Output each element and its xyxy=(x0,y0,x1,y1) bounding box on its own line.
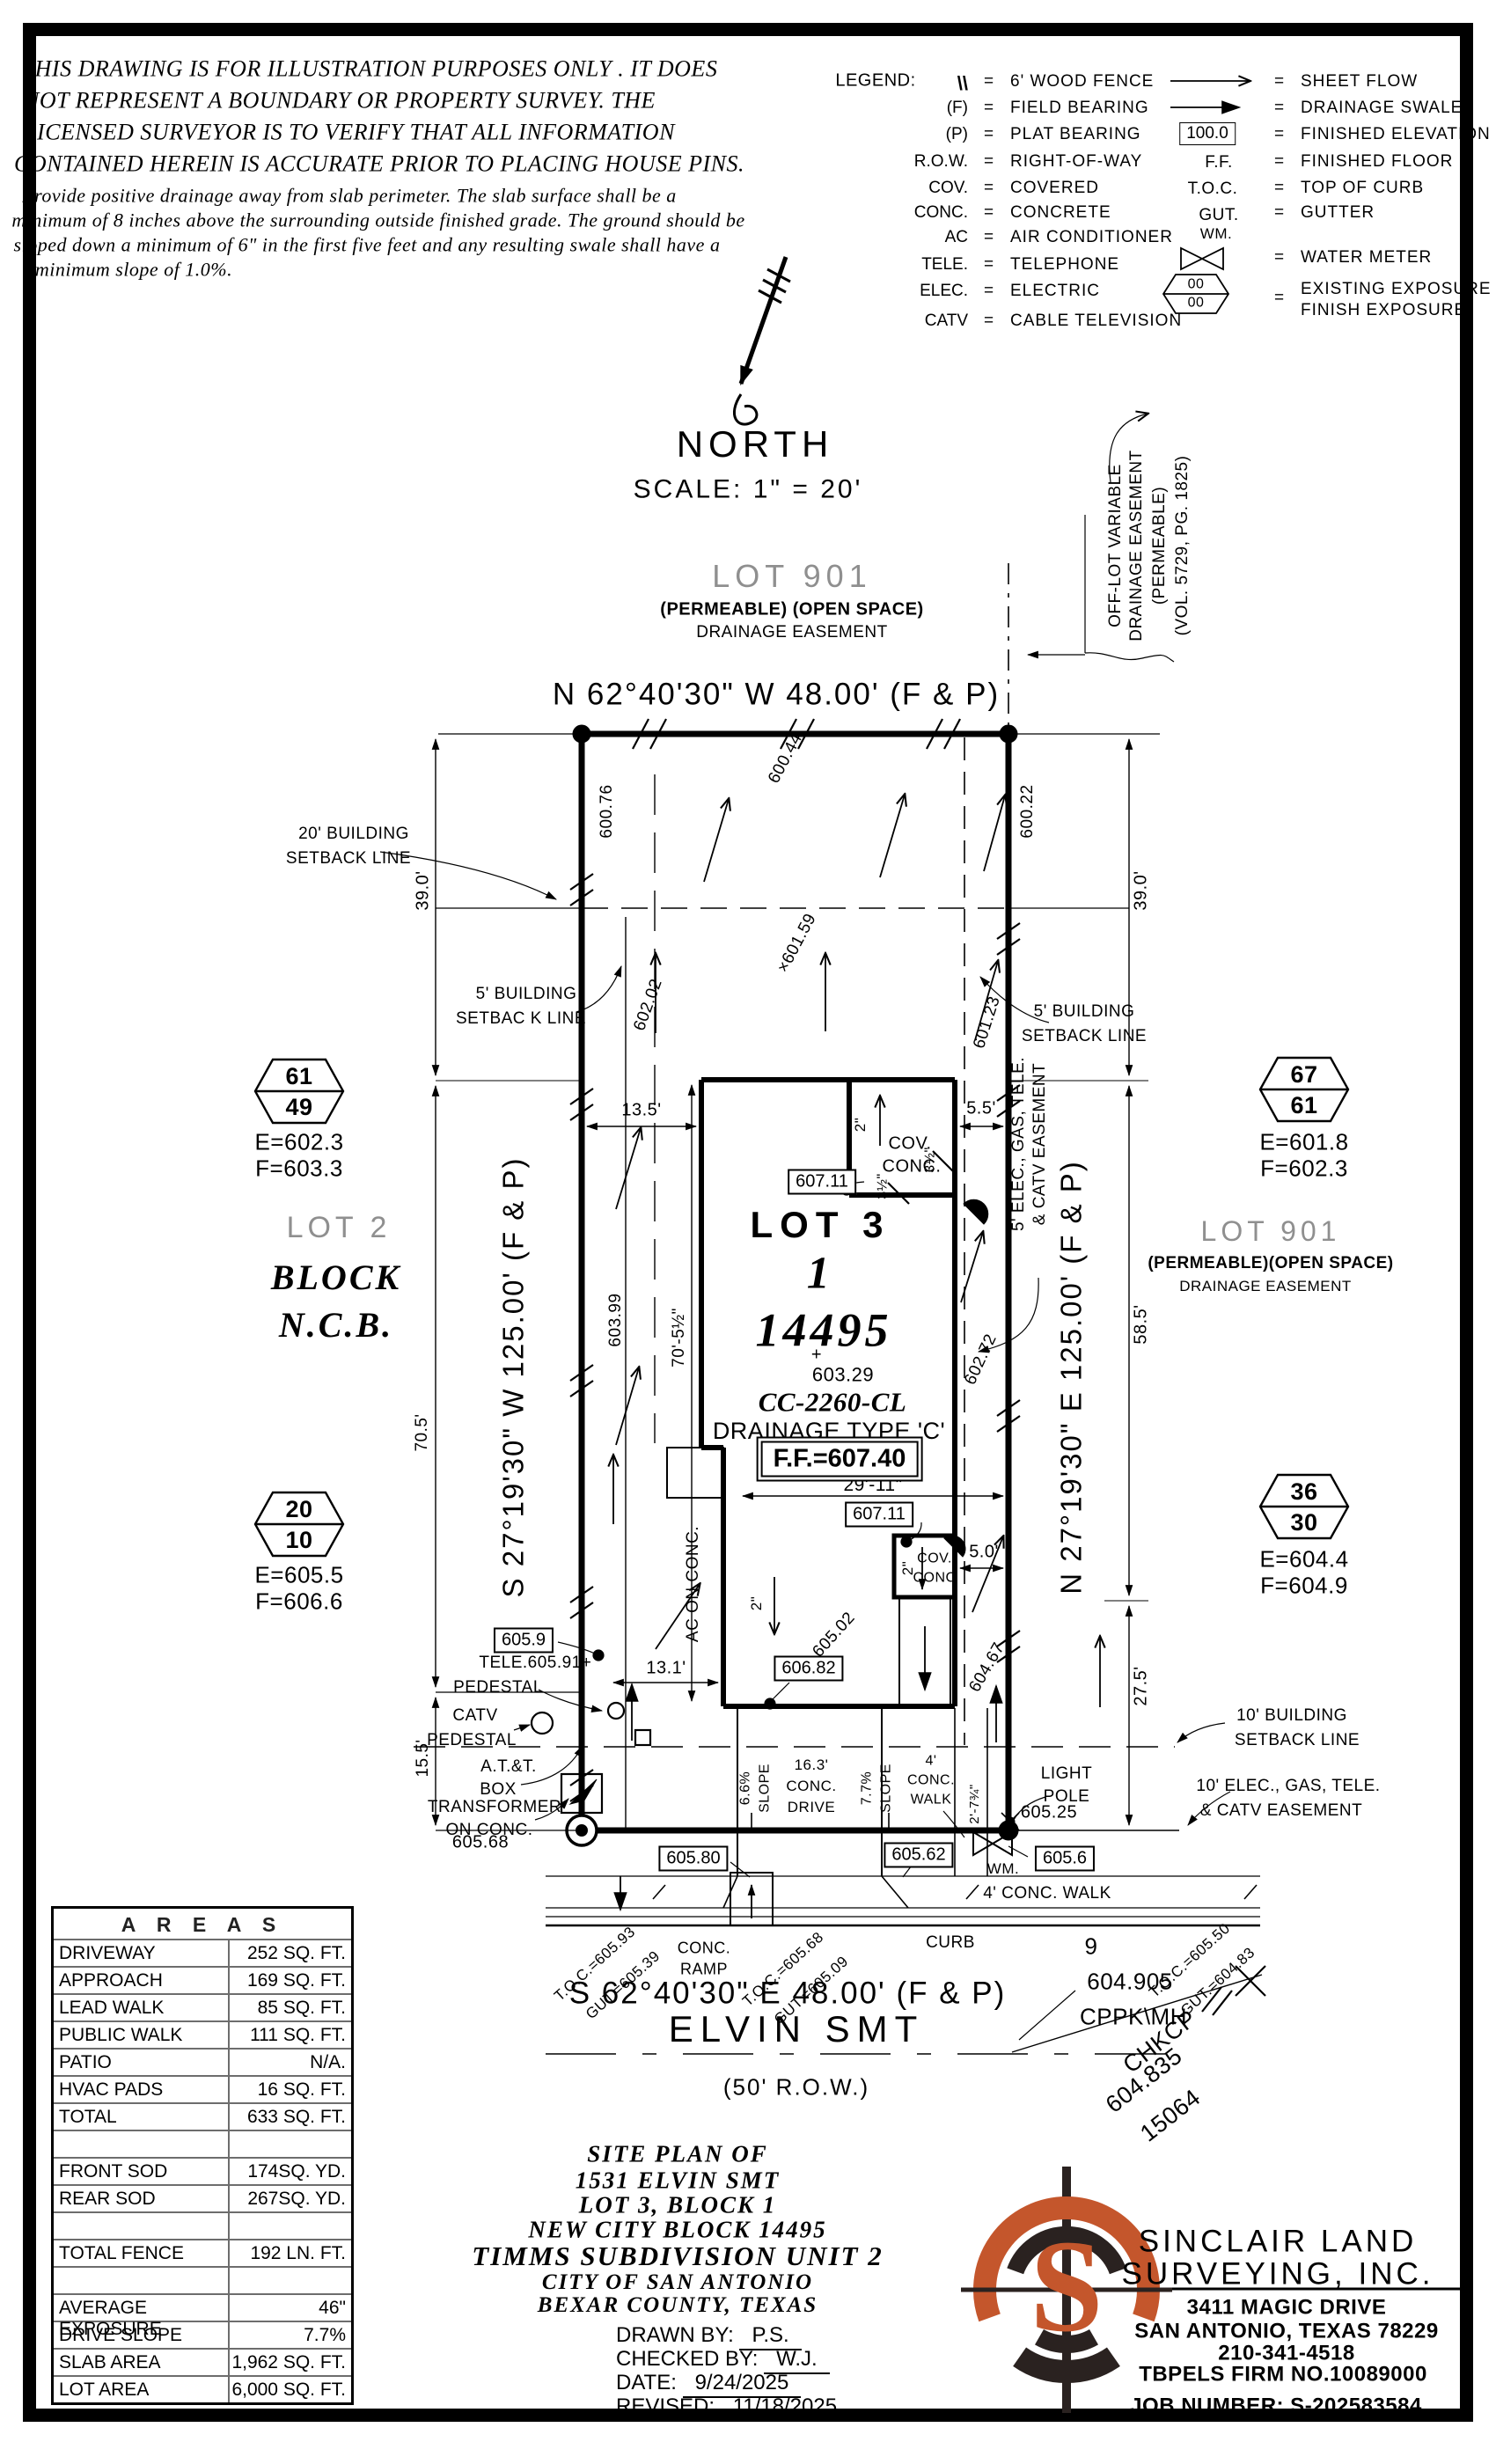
legend-symbol: ELEC. xyxy=(836,282,968,301)
title-line: NEW CITY BLOCK 14495 xyxy=(528,2217,826,2244)
bearing-left: S 27°19'30" W 125.00' (F & P) xyxy=(499,1157,530,1598)
legend-symbol: GUT. xyxy=(1199,207,1238,224)
lead-walk-label: CONC. xyxy=(907,1774,955,1789)
street-name: ELVIN SMT xyxy=(669,2010,925,2049)
legend-desc: CABLE TELEVISION xyxy=(1010,312,1182,331)
legend-symbol: F.F. xyxy=(1205,154,1233,172)
tele-pedestal-label: TELE. xyxy=(479,1654,527,1672)
company-addr: SAN ANTONIO, TEXAS 78229 xyxy=(1134,2320,1438,2342)
drive-slope-label: SLOPE xyxy=(759,1764,774,1813)
dim-39-left: 39.0' xyxy=(414,870,433,910)
row-value: 6,000 SQ. FT. xyxy=(230,2377,351,2402)
legend-desc: CONCRETE xyxy=(1010,203,1111,223)
spot-elev: 605.91+ xyxy=(528,1654,592,1672)
table-row xyxy=(54,2130,351,2157)
lead-walk-label: WALK xyxy=(911,1793,952,1808)
legend-eq: = xyxy=(984,179,994,198)
cov-conc-label: COV. xyxy=(888,1135,931,1154)
areas-table: A R E A S DRIVEWAY252 SQ. FT. APPROACH16… xyxy=(51,1906,354,2405)
hex-top: 36 xyxy=(1290,1479,1317,1504)
dim-5-0: 5.0' xyxy=(969,1544,999,1562)
hex-f: F=606.6 xyxy=(255,1589,343,1613)
hex-top: 61 xyxy=(285,1064,312,1089)
row-value: 111 SQ. FT. xyxy=(230,2022,351,2048)
spot-elev-box: 605.80 xyxy=(658,1846,728,1872)
date-field: DATE: 9/24/2025 xyxy=(616,2371,801,2395)
spot-elev: 600.76 xyxy=(598,784,616,838)
conc-ramp-label: CONC. xyxy=(678,1940,731,1957)
legend-eq: = xyxy=(1274,99,1284,118)
legend-symbol: CATV xyxy=(836,312,968,331)
disclaimer-line: LICENSED SURVEYOR IS TO VERIFY THAT ALL … xyxy=(24,120,675,143)
dim-13-1: 13.1' xyxy=(646,1660,686,1678)
legend-eq: = xyxy=(984,282,994,301)
disclaimer-line: THIS DRAWING IS FOR ILLUSTRATION PURPOSE… xyxy=(22,56,718,80)
spot-elev: 605.25 xyxy=(1021,1804,1077,1822)
lot901-top-title: LOT 901 xyxy=(712,560,871,593)
drive-label: 16.3' xyxy=(795,1757,829,1773)
finished-floor-box: F.F.=607.40 xyxy=(757,1437,923,1482)
north-arrow-icon xyxy=(734,257,790,424)
table-row: PUBLIC WALK111 SQ. FT. xyxy=(54,2020,351,2048)
title-line: BEXAR COUNTY, TEXAS xyxy=(538,2293,818,2318)
legend-desc: EXISTING EXPOSURE xyxy=(1301,280,1492,299)
row-value: 85 SQ. FT. xyxy=(230,1995,351,2020)
row-value: 252 SQ. FT. xyxy=(230,1940,351,1966)
dim-5-5: 5.5' xyxy=(966,1100,996,1118)
field-label: REVISED: xyxy=(616,2394,715,2418)
row-label: DRIVE SLOPE xyxy=(54,2322,230,2348)
row-label: APPROACH xyxy=(54,1968,230,1993)
cov-conc-label: CONC xyxy=(913,1572,956,1587)
row-value: 174SQ. YD. xyxy=(230,2159,351,2184)
lot901-right-sub1: (PERMEABLE)(OPEN SPACE) xyxy=(1148,1255,1393,1272)
att-box-label: A.T.&T. xyxy=(480,1758,537,1776)
lot901-right-sub2: DRAINAGE EASEMENT xyxy=(1179,1279,1352,1294)
table-row: LEAD WALK85 SQ. FT. xyxy=(54,1993,351,2020)
lead-walk-label: 4' xyxy=(926,1755,937,1770)
field-value: 11/18/2025 xyxy=(721,2394,849,2422)
hex-bottom: 30 xyxy=(1290,1510,1317,1535)
legend-desc: TELEPHONE xyxy=(1010,255,1119,275)
disclaimer-line: CONTAINED HEREIN IS ACCURATE PRIOR TO PL… xyxy=(14,151,744,175)
lot2-block: BLOCK xyxy=(271,1259,401,1296)
legend-eq: = xyxy=(1274,125,1284,144)
legend-eq: = xyxy=(984,99,994,118)
hex-e: E=605.5 xyxy=(254,1563,343,1587)
ac-on-conc-label: AC ON CONC. xyxy=(685,1526,702,1642)
company-name: SURVEYING, INC. xyxy=(1122,2259,1434,2292)
row-value: 16 SQ. FT. xyxy=(230,2077,351,2102)
table-row: PATION/A. xyxy=(54,2048,351,2075)
logo-s: S xyxy=(1030,2213,1103,2359)
field-label: CHECKED BY: xyxy=(616,2347,758,2371)
spot-elev-box: 605.6 xyxy=(1035,1846,1095,1872)
dim-2in: 2" xyxy=(853,1118,869,1133)
row-value: 267SQ. YD. xyxy=(230,2186,351,2211)
spot-elev-box: 607.11 xyxy=(788,1170,856,1195)
legend-hex-top: 00 xyxy=(1188,278,1205,293)
easement-10-label: & CATV EASEMENT xyxy=(1200,1802,1363,1820)
row-label: SLAB AREA xyxy=(54,2350,230,2375)
house-plan-code: CC-2260-CL xyxy=(759,1389,907,1418)
manhole-note: CPPK\MH xyxy=(1080,2005,1187,2028)
table-row: REAR SOD267SQ. YD. xyxy=(54,2184,351,2211)
company-name: SINCLAIR LAND xyxy=(1139,2226,1418,2259)
legend-eq: = xyxy=(1274,152,1284,172)
legend-symbol: CONC. xyxy=(836,203,968,223)
table-row: AVERAGE EXPOSURE46" xyxy=(54,2293,351,2321)
hex-bottom: 49 xyxy=(285,1095,312,1119)
legend-eq: = xyxy=(984,312,994,331)
table-row: DRIVE SLOPE7.7% xyxy=(54,2321,351,2348)
legend-eq: = xyxy=(984,125,994,144)
house-ncb-num: 14495 xyxy=(756,1306,892,1356)
transformer-label: ON CONC. xyxy=(446,1822,533,1839)
row-label: TOTAL FENCE xyxy=(54,2240,230,2266)
field-label: DATE: xyxy=(616,2371,677,2394)
setback-5l-label: 5' BUILDING xyxy=(476,986,577,1003)
revised-field: REVISED: 11/18/2025 xyxy=(616,2394,849,2419)
row-label xyxy=(54,2268,230,2293)
house-spot-plus: + xyxy=(811,1346,822,1365)
legend-desc: AIR CONDITIONER xyxy=(1010,228,1173,247)
row-label: AVERAGE EXPOSURE xyxy=(54,2295,230,2321)
spot-elev-box: 605.9 xyxy=(494,1628,554,1654)
legend-eq: = xyxy=(984,203,994,223)
table-row: TOTAL FENCE192 LN. FT. xyxy=(54,2239,351,2266)
public-walk-label: 4' CONC. WALK xyxy=(983,1885,1111,1903)
drive-slope-label: SLOPE xyxy=(880,1764,895,1813)
site-plan-sheet: THIS DRAWING IS FOR ILLUSTRATION PURPOSE… xyxy=(0,0,1496,2464)
legend-desc: SHEET FLOW xyxy=(1301,72,1418,92)
table-row: DRIVEWAY252 SQ. FT. xyxy=(54,1939,351,1966)
dim-2in: 2" xyxy=(749,1596,765,1611)
light-pole-label: POLE xyxy=(1044,1788,1090,1806)
legend-desc: FIELD BEARING xyxy=(1010,99,1149,118)
house-block-num: 1 xyxy=(807,1250,831,1299)
dim-3half: 3½" xyxy=(876,1173,891,1199)
legend-desc: PLAT BEARING xyxy=(1010,125,1141,144)
bearing-bottom: S 62°40'30" E 48.00' (F & P) xyxy=(569,1978,1007,2011)
row-label: PUBLIC WALK xyxy=(54,2022,230,2048)
row-label xyxy=(54,2131,230,2157)
drawn-by-field: DRAWN BY: P.S. xyxy=(616,2323,802,2348)
disclaimer-note: Provide positive drainage away from slab… xyxy=(22,185,677,205)
dim-27-5: 27.5' xyxy=(1133,1666,1151,1705)
legend-desc: RIGHT-OF-WAY xyxy=(1010,152,1142,172)
row-label: TOTAL xyxy=(54,2104,230,2130)
catv-pedestal-label: CATV xyxy=(452,1707,497,1725)
easement-5-label: 5' ELEC., GAS, TELE. xyxy=(1010,1057,1028,1231)
legend-symbol: R.O.W. xyxy=(836,152,968,172)
offlot-easement-note: DRAINAGE EASEMENT xyxy=(1128,450,1146,642)
disclaimer-note: sloped down a minimum of 6" in the first… xyxy=(14,234,721,254)
setback-5r-label: SETBACK LINE xyxy=(1022,1028,1147,1045)
bearing-right: N 27°19'30" E 125.00' (F & P) xyxy=(1057,1160,1088,1595)
legend-desc: DRAINAGE SWALE xyxy=(1301,99,1463,118)
legend-eq: = xyxy=(1274,72,1284,92)
legend-desc: FINISH EXPOSURE xyxy=(1301,301,1466,320)
drive-slope-label: 6.6% xyxy=(739,1771,754,1805)
table-row: TOTAL633 SQ. FT. xyxy=(54,2102,351,2130)
row-label: LOT AREA xyxy=(54,2377,230,2402)
legend-hex-bottom: 00 xyxy=(1188,297,1205,312)
north-label: NORTH xyxy=(677,425,834,464)
row-value: 7.7% xyxy=(230,2322,351,2348)
table-row: LOT AREA6,000 SQ. FT. xyxy=(54,2375,351,2402)
setback-10-label: SETBACK LINE xyxy=(1235,1732,1360,1749)
row-label: DRIVEWAY xyxy=(54,1940,230,1966)
cov-conc-label: COV. xyxy=(917,1552,952,1567)
hex-e: E=604.4 xyxy=(1259,1547,1348,1571)
title-line: CITY OF SAN ANTONIO xyxy=(542,2270,813,2295)
setback-10-label: 10' BUILDING xyxy=(1236,1707,1347,1725)
dim-2-7: 2'-7¾" xyxy=(968,1784,982,1823)
transformer-label: TRANSFORMER xyxy=(428,1799,561,1816)
table-row: SLAB AREA1,962 SQ. FT. xyxy=(54,2348,351,2375)
company-addr: 3411 MAGIC DRIVE xyxy=(1187,2296,1387,2318)
manhole-note: 604.905 xyxy=(1087,1969,1172,1993)
setback-5r-label: 5' BUILDING xyxy=(1034,1003,1135,1021)
drive-label: CONC. xyxy=(786,1778,836,1794)
company-job: JOB NUMBER: S-202583584 xyxy=(1130,2394,1422,2416)
checked-by-field: CHECKED BY: W.J. xyxy=(616,2347,830,2372)
legend-symbol: COV. xyxy=(836,179,968,198)
field-label: DRAWN BY: xyxy=(616,2323,734,2347)
spot-elev: 603.99 xyxy=(607,1293,625,1346)
spot-elev: 600.22 xyxy=(1019,784,1037,838)
legend-symbol: T.O.C. xyxy=(1188,180,1238,198)
legend-eq: = xyxy=(984,255,994,275)
offlot-easement-note: (PERMEABLE) xyxy=(1151,487,1169,605)
lot901-top-sub2: DRAINAGE EASEMENT xyxy=(696,624,888,642)
legend-eq: = xyxy=(1274,289,1284,308)
row-label: REAR SOD xyxy=(54,2186,230,2211)
legend-symbol: AC xyxy=(836,228,968,247)
title-line: SITE PLAN OF xyxy=(587,2141,768,2168)
row-label: PATIO xyxy=(54,2050,230,2075)
legend-desc: 6' WOOD FENCE xyxy=(1010,72,1154,92)
dim-39-right: 39.0' xyxy=(1133,870,1151,910)
table-row: APPROACH169 SQ. FT. xyxy=(54,1966,351,1993)
row-value: 1,962 SQ. FT. xyxy=(230,2350,351,2375)
drive-label: DRIVE xyxy=(788,1800,835,1815)
dim-70-5half: 70'-5½" xyxy=(671,1308,688,1368)
legend-symbol: (P) xyxy=(836,125,968,144)
easement-10-label: 10' ELEC., GAS, TELE. xyxy=(1196,1778,1380,1795)
drive-slope-label: 7.7% xyxy=(861,1771,876,1805)
hex-f: F=602.3 xyxy=(1260,1156,1348,1180)
light-pole-label: LIGHT xyxy=(1041,1765,1092,1783)
street-row: (50' R.O.W.) xyxy=(723,2075,869,2099)
disclaimer-note: minimum of 8 inches above the surroundin… xyxy=(11,209,744,230)
legend-symbol: TELE. xyxy=(836,255,968,275)
title-line: 1531 ELVIN SMT xyxy=(576,2167,781,2195)
legend-eq: = xyxy=(1274,248,1284,268)
spot-elev-box: 605.62 xyxy=(884,1843,953,1868)
legend-symbol: \\ xyxy=(836,72,968,95)
setback-5l-label: SETBAC K LINE xyxy=(456,1010,586,1028)
row-label: LEAD WALK xyxy=(54,1995,230,2020)
legend-eq: = xyxy=(984,152,994,172)
company-phone: 210-341-4518 xyxy=(1218,2342,1354,2364)
row-label xyxy=(54,2213,230,2239)
row-value xyxy=(230,2213,351,2239)
row-value: 46" xyxy=(230,2295,351,2321)
catv-pedestal-label: PEDESTAL xyxy=(427,1732,517,1749)
legend-eq: = xyxy=(984,228,994,247)
hex-bottom: 10 xyxy=(285,1528,312,1552)
hex-f: F=604.9 xyxy=(1260,1573,1348,1597)
disclaimer-line: NOT REPRESENT A BOUNDARY OR PROPERTY SUR… xyxy=(24,88,656,112)
legend-eq: = xyxy=(984,72,994,92)
legend-eq: = xyxy=(1274,179,1284,198)
house-spot-elev: 603.29 xyxy=(812,1364,874,1384)
row-label: HVAC PADS xyxy=(54,2077,230,2102)
row-value: 633 SQ. FT. xyxy=(230,2104,351,2130)
legend-symbol: WM. xyxy=(1200,226,1232,242)
conc-ramp-label: RAMP xyxy=(680,1962,728,1978)
lot2-ncb: N.C.B. xyxy=(279,1307,393,1344)
cov-conc-label: CONC. xyxy=(883,1158,942,1177)
lot901-top-sub1: (PERMEABLE) (OPEN SPACE) xyxy=(660,601,923,620)
easement-5-label: & CATV EASEMENT xyxy=(1031,1063,1049,1226)
bearing-top: N 62°40'30" W 48.00' (F & P) xyxy=(553,679,1000,712)
legend-desc: GUTTER xyxy=(1301,203,1375,223)
dim-13-5: 13.5' xyxy=(621,1102,661,1120)
spot-elev-box: 607.11 xyxy=(845,1502,913,1528)
hex-f: F=603.3 xyxy=(255,1156,343,1180)
legend-desc: ELECTRIC xyxy=(1010,282,1100,301)
legend-eq: = xyxy=(1274,203,1284,223)
table-row xyxy=(54,2211,351,2239)
legend-desc: COVERED xyxy=(1010,179,1099,198)
legend-desc: FINISHED FLOOR xyxy=(1301,152,1453,172)
legend-finished-elevation-box: 100.0 xyxy=(1179,122,1236,145)
table-row: FRONT SOD174SQ. YD. xyxy=(54,2157,351,2184)
dim-58-5: 58.5' xyxy=(1133,1304,1151,1344)
table-row: HVAC PADS16 SQ. FT. xyxy=(54,2075,351,2102)
legend-desc: FINISHED ELEVATION xyxy=(1301,125,1491,144)
setback-20-label: SETBACK LINE xyxy=(286,850,411,868)
row-value xyxy=(230,2268,351,2293)
row-value: 192 LN. FT. xyxy=(230,2240,351,2266)
offlot-easement-note: OFF-LOT VARIABLE xyxy=(1107,464,1125,627)
manhole-note: 9 xyxy=(1085,1934,1098,1958)
scale-label: SCALE: 1" = 20' xyxy=(634,475,863,503)
spot-elev-box: 606.82 xyxy=(774,1656,843,1682)
row-value: 169 SQ. FT. xyxy=(230,1968,351,1993)
disclaimer-note: minimum slope of 1.0%. xyxy=(35,259,232,279)
lot901-right-title: LOT 901 xyxy=(1201,1217,1341,1247)
row-label: FRONT SOD xyxy=(54,2159,230,2184)
title-line: TIMMS SUBDIVISION UNIT 2 xyxy=(472,2240,883,2272)
hex-e: E=601.8 xyxy=(1259,1130,1348,1154)
setback-20-label: 20' BUILDING xyxy=(298,825,409,843)
tele-pedestal-label: PEDESTAL xyxy=(453,1679,543,1697)
house-lot3: LOT 3 xyxy=(750,1206,890,1244)
table-row xyxy=(54,2266,351,2293)
curb-label: CURB xyxy=(926,1934,975,1952)
hex-top: 20 xyxy=(285,1497,312,1522)
lot2-title: LOT 2 xyxy=(287,1213,392,1244)
offlot-easement-note: (VOL. 5729, PG. 1825) xyxy=(1174,456,1192,636)
water-meter-label: WM. xyxy=(987,1861,1019,1877)
hex-bottom: 61 xyxy=(1290,1093,1317,1118)
row-value: N/A. xyxy=(230,2050,351,2075)
company-firm: TBPELS FIRM NO.10089000 xyxy=(1139,2363,1427,2385)
legend-desc: TOP OF CURB xyxy=(1301,179,1424,198)
att-box-label: BOX xyxy=(480,1781,517,1799)
title-line: LOT 3, BLOCK 1 xyxy=(579,2192,777,2219)
row-value xyxy=(230,2131,351,2157)
legend-symbol: (F) xyxy=(836,99,968,118)
hex-e: E=602.3 xyxy=(254,1130,343,1154)
legend-desc: WATER METER xyxy=(1301,248,1432,268)
dim-70-5: 70.5' xyxy=(414,1413,431,1451)
hex-top: 67 xyxy=(1290,1062,1317,1087)
areas-title: A R E A S xyxy=(54,1909,351,1939)
